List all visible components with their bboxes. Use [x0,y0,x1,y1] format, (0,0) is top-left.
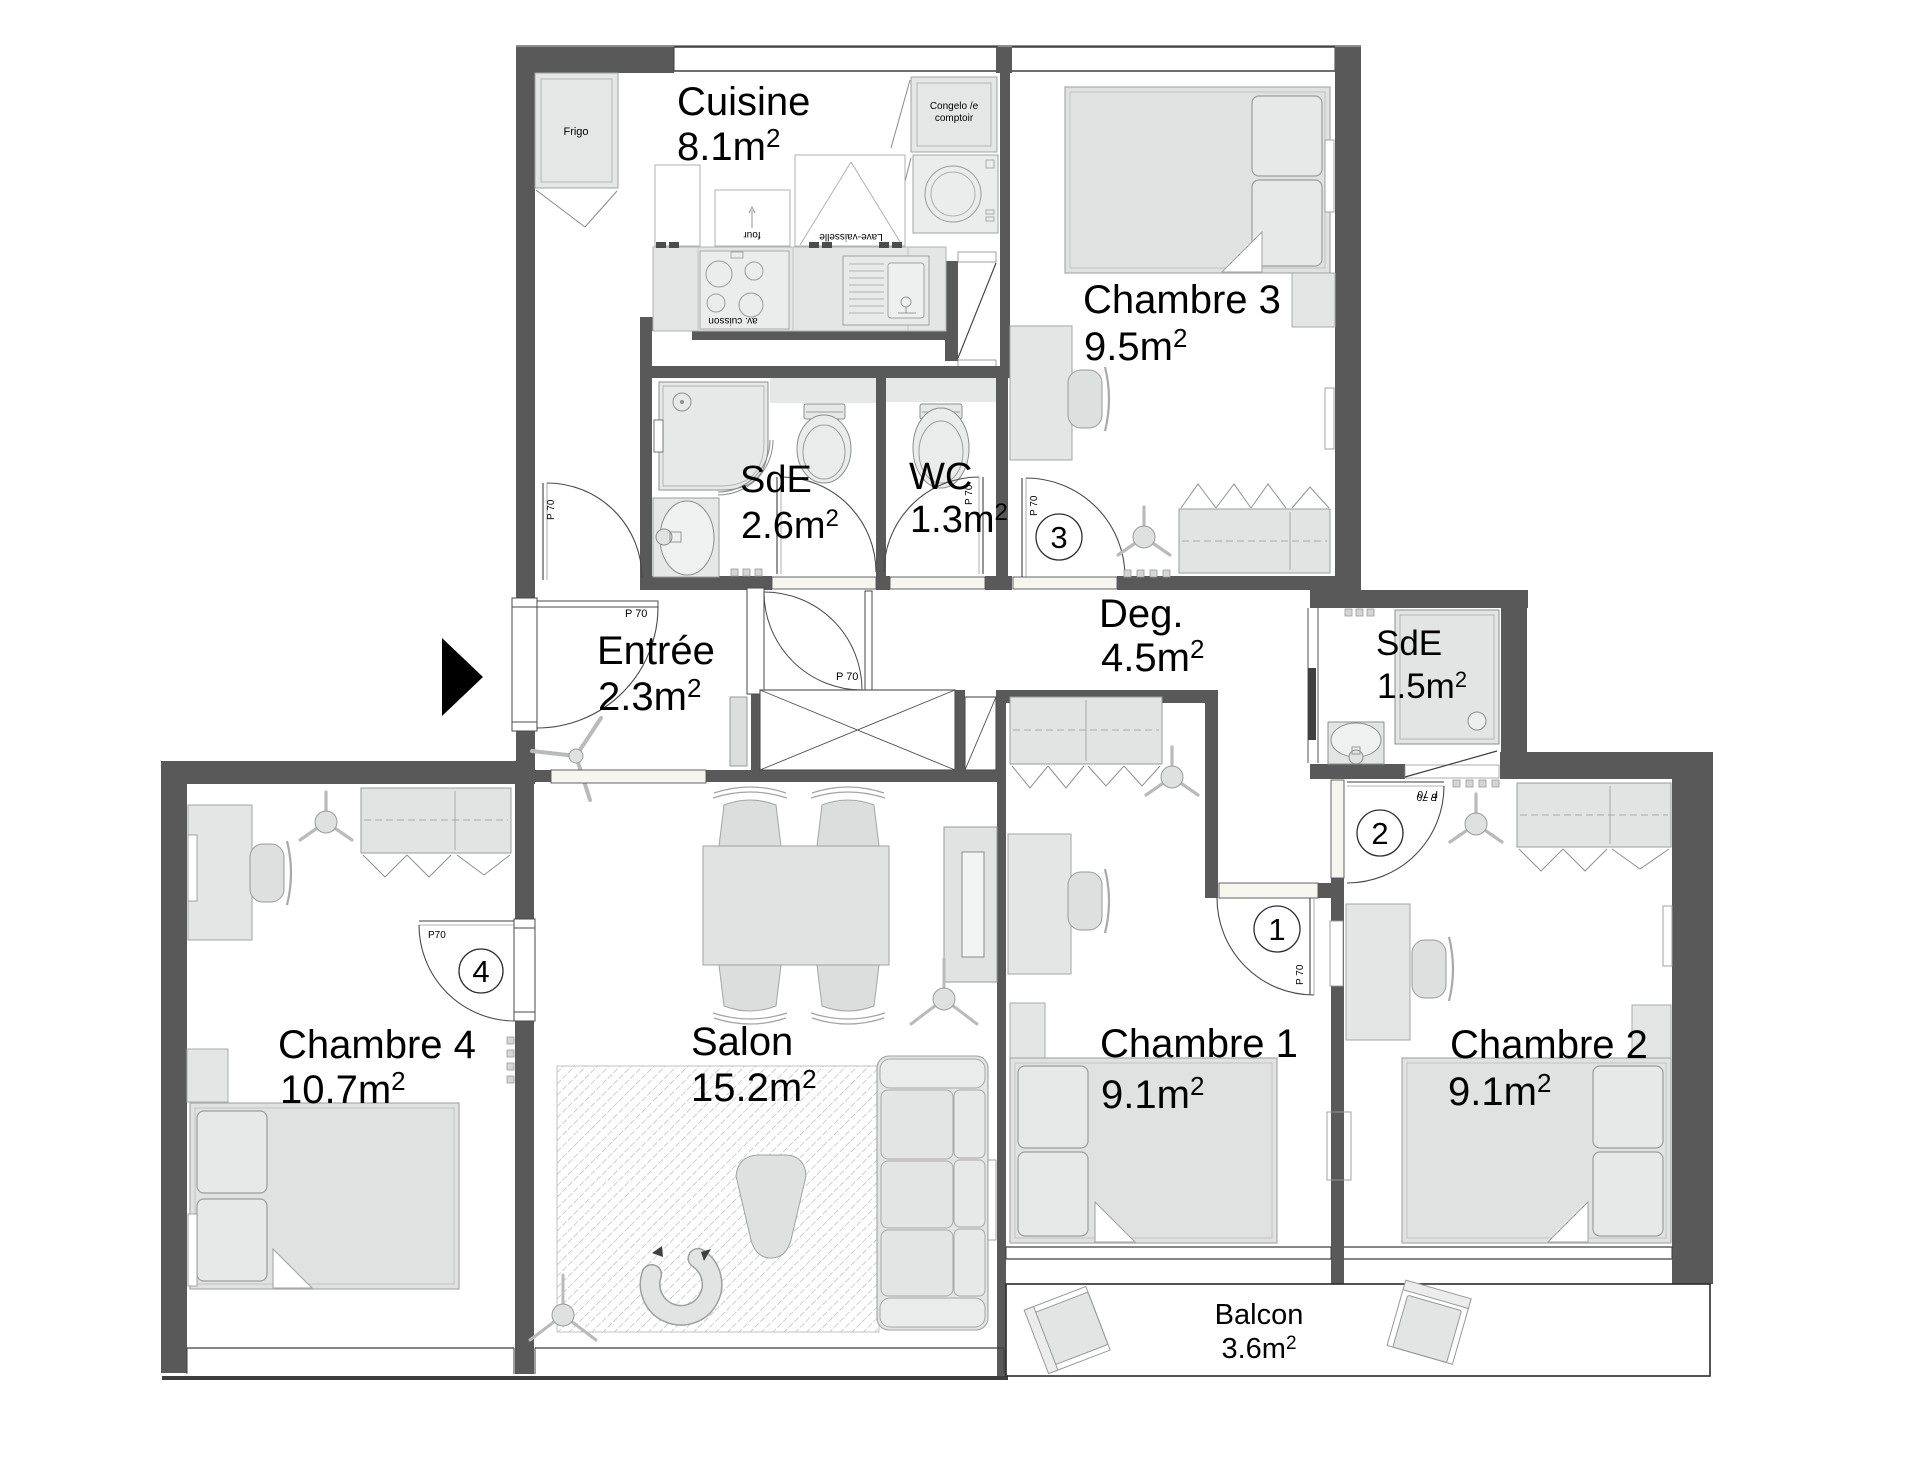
svg-text:P 70: P 70 [546,499,557,520]
svg-text:SdE: SdE [740,459,812,501]
svg-text:Lave-vaisselle: Lave-vaisselle [819,231,883,242]
svg-text:Cuisine: Cuisine [677,80,810,124]
svg-text:Deg.: Deg. [1099,592,1184,636]
svg-text:P70: P70 [428,930,446,941]
svg-text:Balcon: Balcon [1215,1299,1304,1331]
svg-text:4: 4 [472,954,489,989]
svg-text:9.1m2: 9.1m2 [1448,1068,1551,1114]
svg-text:P 70: P 70 [1029,495,1040,516]
svg-text:1.3m2: 1.3m2 [910,499,1008,541]
svg-text:Chambre 3: Chambre 3 [1083,278,1281,322]
svg-text:1.5m2: 1.5m2 [1377,667,1467,706]
svg-text:15.2m2: 15.2m2 [691,1064,817,1110]
svg-text:Chambre 2: Chambre 2 [1450,1023,1648,1067]
svg-text:3.6m2: 3.6m2 [1221,1333,1296,1365]
svg-text:Entrée: Entrée [597,629,715,673]
svg-text:1: 1 [1268,912,1285,947]
svg-text:P 70: P 70 [836,671,858,683]
svg-text:P 70: P 70 [1295,964,1306,985]
svg-text:2.6m2: 2.6m2 [741,505,839,547]
svg-text:Frigo: Frigo [563,126,588,138]
svg-text:9.5m2: 9.5m2 [1084,323,1187,369]
svg-text:Congelo /e: Congelo /e [930,101,979,112]
svg-text:SdE: SdE [1376,624,1442,663]
svg-text:P 70: P 70 [625,608,647,620]
svg-text:3: 3 [1050,520,1067,555]
svg-text:9.1m2: 9.1m2 [1101,1071,1204,1117]
svg-text:four: four [743,229,761,240]
svg-text:4.5m2: 4.5m2 [1101,634,1204,680]
svg-text:2: 2 [1371,816,1388,851]
svg-text:av. cuisson: av. cuisson [708,315,757,326]
svg-text:Salon: Salon [691,1020,793,1064]
svg-text:Chambre 4: Chambre 4 [278,1023,476,1067]
svg-text:2.3m2: 2.3m2 [598,673,701,719]
svg-text:8.1m2: 8.1m2 [677,123,780,169]
svg-text:WC: WC [909,456,972,498]
svg-text:P 70: P 70 [1417,788,1438,799]
svg-text:Chambre 1: Chambre 1 [1100,1022,1298,1066]
svg-text:10.7m2: 10.7m2 [280,1066,406,1112]
svg-text:comptoir: comptoir [935,113,974,124]
